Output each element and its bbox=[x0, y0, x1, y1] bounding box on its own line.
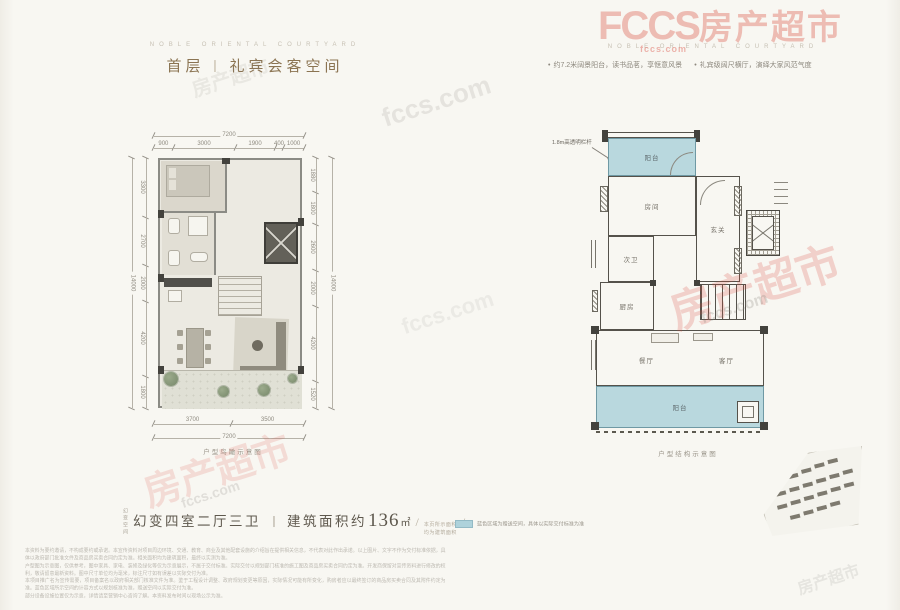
left-plan-caption: 户型鸟瞰示意图 bbox=[118, 446, 348, 456]
balcony-bottom: 阳台 bbox=[596, 386, 764, 428]
room-label-foyer: 玄关 bbox=[711, 224, 726, 234]
kitchen-appliance bbox=[168, 290, 182, 302]
plant bbox=[258, 384, 270, 396]
disclaimer-line: 本项目推广名为宣传需要，项目备案名以政府相关部门核准文件为准。鉴于工程设计调整、… bbox=[25, 578, 446, 593]
dim-top-segments: 900 3000 1900 400 1000 bbox=[154, 140, 304, 149]
building-block bbox=[803, 509, 814, 515]
toilet bbox=[168, 218, 180, 234]
page-title: 首层丨礼宾会客空间 bbox=[105, 55, 405, 76]
title-suffix: 礼宾会客空间 bbox=[230, 59, 344, 75]
wall-pier bbox=[298, 366, 304, 374]
watermark-center-top: fccs.com bbox=[378, 69, 495, 133]
room-label-balcony-bottom: 阳台 bbox=[673, 402, 688, 412]
wall-pier bbox=[591, 422, 599, 430]
selling-point-1: •约7.2米阔景阳台，读书品茗，享惬意风景 bbox=[548, 60, 682, 70]
building-block bbox=[827, 458, 838, 464]
dim-left-total: 14000 bbox=[124, 158, 133, 408]
watermark-bottom-right: 房产超市 bbox=[794, 557, 862, 600]
building-block bbox=[788, 473, 799, 479]
unit-title: 幻变四室二厅三卫 bbox=[133, 510, 261, 530]
wall-pier bbox=[222, 158, 230, 164]
shower bbox=[188, 216, 208, 236]
building-block bbox=[804, 495, 815, 501]
disclaimer: 本资料为要约邀请，不构成要约或承诺。本宣传资料对项目周边环境、交通、教育、商业及… bbox=[25, 548, 446, 601]
area-unit: ㎡ bbox=[401, 514, 411, 529]
watermark-brand-cn-text: 房产超市 bbox=[699, 9, 843, 47]
wall-pier bbox=[760, 422, 768, 430]
bullet-icon: • bbox=[548, 62, 550, 69]
page: FCCS房产超市 fccs.com 房产超市 fccs.com fccs.com… bbox=[0, 0, 900, 610]
header-left: NOBLE ORIENTAL COURTYARD 首层丨礼宾会客空间 bbox=[105, 42, 405, 76]
watermark-brand-text: FCCS bbox=[598, 4, 699, 48]
watermark-top-right: FCCS房产超市 bbox=[598, 0, 843, 49]
disclaimer-line: 户型图为示意图，仅供参考，图中家具、家电、装修及绿化等仅为示意展示，不属于交付标… bbox=[25, 563, 446, 578]
great-hall: 餐厅 客厅 bbox=[596, 330, 764, 386]
masonry-pier bbox=[734, 186, 742, 216]
area-prefix: 建筑面积约 bbox=[287, 510, 367, 530]
right-plan-body: 阳台 房间 次卫 玄关 厨房 bbox=[588, 130, 788, 432]
wall-pier bbox=[158, 274, 164, 282]
dining-table bbox=[186, 328, 204, 368]
sink bbox=[190, 252, 208, 262]
left-floorplan: 7200 900 3000 1900 400 1000 14000 3300 2… bbox=[118, 116, 348, 466]
slash-icon: / bbox=[416, 515, 419, 530]
gift-area-legend: 蓝色区域为赠送空间，具体以实际交付标准为准 bbox=[455, 519, 603, 528]
dim-left-segments: 3300 2700 2000 4200 1800 bbox=[138, 158, 147, 408]
building-block bbox=[790, 499, 801, 505]
room-label-balcony-top: 阳台 bbox=[645, 152, 660, 162]
building-block bbox=[777, 503, 788, 509]
micro-vertical-text: 幻变空间 bbox=[122, 508, 129, 542]
area-note-line1: 本页所示面积 bbox=[424, 522, 457, 528]
room-label-bath: 次卫 bbox=[624, 254, 639, 264]
dining-chair bbox=[205, 358, 211, 364]
entry-steps bbox=[774, 178, 788, 204]
building-block bbox=[830, 486, 841, 492]
room-label-kitchen: 厨房 bbox=[620, 301, 635, 311]
right-floorplan: 1.8m高透明栏杆 阳台 房间 次卫 玄关 bbox=[548, 118, 818, 468]
window bbox=[591, 340, 596, 370]
furniture-outline bbox=[693, 333, 713, 341]
dining-chair bbox=[177, 344, 183, 350]
dining-chair bbox=[177, 358, 183, 364]
building-block bbox=[830, 501, 841, 507]
window bbox=[591, 240, 596, 268]
bed bbox=[166, 165, 210, 197]
room-label-living: 客厅 bbox=[719, 355, 734, 365]
unit-summary: 幻变四室二厅三卫 丨 建筑面积约 136 ㎡ / 本页所示面积 均为建筑面积 / bbox=[133, 510, 470, 537]
plant bbox=[218, 386, 229, 397]
legend-color-swatch bbox=[455, 520, 473, 528]
wall-pier bbox=[158, 366, 164, 374]
dim-bottom-segments: 3700 3500 bbox=[154, 416, 304, 425]
masonry-pier bbox=[600, 186, 608, 212]
building-block bbox=[776, 490, 787, 496]
wall-pier bbox=[591, 326, 599, 334]
building-block bbox=[817, 490, 828, 496]
legend-text: 蓝色区域为赠送空间，具体以实际交付标准为准 bbox=[477, 520, 584, 528]
header-right: NOBLE ORIENTAL COURTYARD •约7.2米阔景阳台，读书品茗… bbox=[548, 44, 878, 70]
area-note: 本页所示面积 均为建筑面积 bbox=[424, 522, 457, 537]
watermark-center-faint: fccs.com bbox=[398, 286, 497, 340]
building-block bbox=[814, 462, 825, 468]
building-block bbox=[802, 482, 813, 488]
dim-bottom-total: 7200 bbox=[154, 430, 304, 439]
curtain-wall bbox=[596, 431, 764, 433]
staircase bbox=[700, 284, 746, 320]
staircase bbox=[218, 276, 262, 316]
dim-right-segments: 1880 1800 2600 2000 4200 1520 bbox=[308, 158, 317, 408]
furniture-outline bbox=[651, 333, 679, 343]
header-left-eyebrow: NOBLE ORIENTAL COURTYARD bbox=[105, 42, 405, 48]
header-right-eyebrow: NOBLE ORIENTAL COURTYARD bbox=[548, 44, 878, 50]
kitchen-counter bbox=[164, 278, 212, 287]
building-block bbox=[829, 473, 840, 479]
selling-points: •约7.2米阔景阳台，读书品茗，享惬意风景 •礼宾级阔尺横厅，演绎大家风范气度 bbox=[548, 60, 878, 70]
bathroom-room: 次卫 bbox=[608, 236, 654, 282]
building-block bbox=[801, 468, 812, 474]
dining-chair bbox=[205, 344, 211, 350]
elevator-shaft bbox=[264, 222, 298, 264]
masonry-pier bbox=[592, 290, 598, 312]
wall-pier bbox=[694, 280, 700, 286]
building-block bbox=[816, 477, 827, 483]
terrace bbox=[162, 370, 302, 409]
building-block bbox=[844, 482, 855, 488]
room-label-bedroom: 房间 bbox=[645, 201, 660, 211]
railing-annotation: 1.8m高透明栏杆 bbox=[552, 138, 592, 146]
left-plan-body bbox=[158, 158, 302, 408]
area-value: 136 bbox=[368, 510, 400, 532]
coffee-table bbox=[252, 340, 263, 351]
wall-pier bbox=[298, 218, 304, 226]
plant bbox=[288, 374, 297, 383]
room-label-dining: 餐厅 bbox=[639, 355, 654, 365]
plant bbox=[164, 372, 178, 386]
building-block bbox=[816, 505, 827, 511]
wall-pier bbox=[158, 210, 164, 218]
unit-divider: 丨 bbox=[268, 513, 280, 530]
dim-top-total: 7200 bbox=[154, 128, 304, 137]
building-block bbox=[789, 486, 800, 492]
masonry-pier bbox=[734, 248, 742, 274]
wall-pier bbox=[650, 280, 656, 286]
right-plan-caption: 户型结构示意图 bbox=[588, 448, 788, 458]
disclaimer-line: 本资料为要约邀请，不构成要约或承诺。本宣传资料对项目周边环境、交通、教育、商业及… bbox=[25, 548, 446, 563]
dim-right-total: 14000 bbox=[324, 158, 333, 408]
building-block bbox=[842, 469, 853, 475]
elevator-car bbox=[752, 216, 774, 250]
area-note-line2: 均为建筑面积 bbox=[424, 530, 457, 536]
elevator-shaft bbox=[746, 210, 780, 256]
disclaimer-line: 部分设备设施位置仅为示意，详情请至营销中心咨询了解。本资料发布时间以现场公示为准… bbox=[25, 593, 446, 601]
toilet bbox=[168, 250, 180, 266]
building-block bbox=[790, 514, 801, 520]
watermark-bottom-left-site: fccs.com bbox=[179, 477, 242, 511]
bullet-icon: • bbox=[694, 62, 696, 69]
building-block bbox=[775, 478, 786, 484]
title-prefix: 首层 bbox=[166, 59, 204, 75]
balcony-planter-inner bbox=[742, 406, 754, 418]
wall-pier bbox=[760, 326, 768, 334]
dining-chair bbox=[177, 330, 183, 336]
selling-point-2: •礼宾级阔尺横厅，演绎大家风范气度 bbox=[694, 60, 811, 70]
bedroom-room: 房间 bbox=[608, 176, 696, 236]
dining-chair bbox=[205, 330, 211, 336]
title-divider: 丨 bbox=[208, 59, 225, 74]
kitchen-room: 厨房 bbox=[600, 282, 654, 330]
